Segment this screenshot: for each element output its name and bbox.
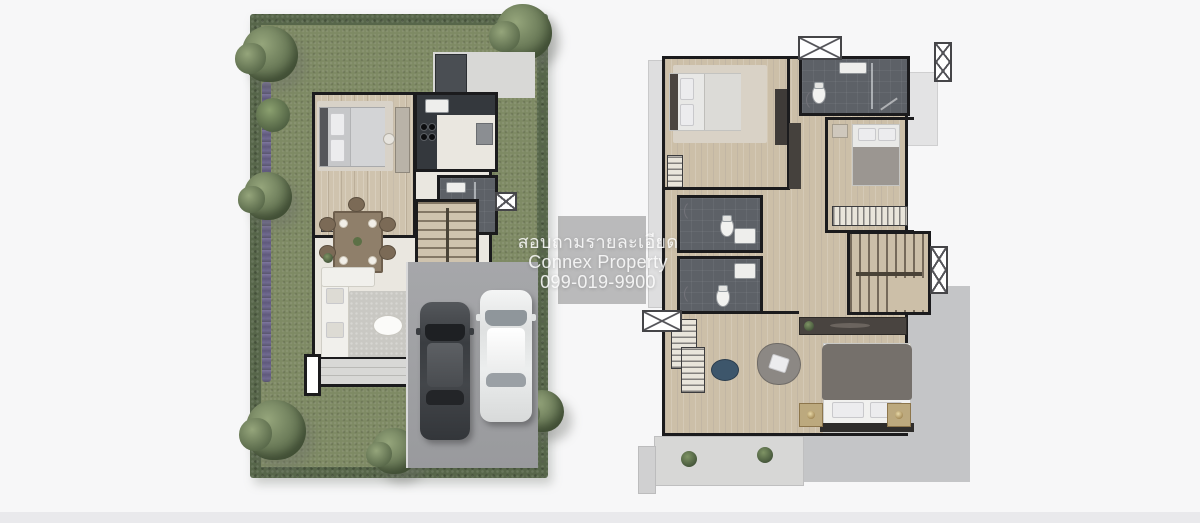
pillow — [878, 128, 896, 141]
place-setting — [339, 256, 348, 265]
hall-wardrobe — [789, 123, 801, 189]
desk-chair — [383, 133, 395, 145]
bathroom-sink — [734, 228, 756, 244]
pillow — [858, 128, 876, 141]
toilet — [720, 218, 734, 237]
stair-landing — [894, 278, 926, 310]
driveway-curb — [406, 262, 408, 468]
stove-burner — [420, 123, 428, 131]
pillow — [768, 354, 790, 374]
kitchen-sink — [425, 99, 449, 113]
bean-bag — [711, 359, 739, 381]
tree — [246, 400, 306, 460]
door-swing — [806, 89, 828, 111]
bottom-edge-strip — [0, 512, 1200, 523]
bed — [319, 107, 385, 167]
wardrobe — [832, 206, 908, 226]
roof-terrace-lower — [802, 432, 968, 482]
desk — [395, 107, 410, 173]
window-icon — [642, 310, 682, 332]
staircase — [847, 231, 931, 315]
master-bathroom — [799, 56, 910, 116]
skylight-icon — [798, 36, 842, 60]
tree — [242, 26, 298, 82]
tree — [244, 172, 292, 220]
console-table — [799, 317, 907, 335]
stove-burner — [428, 123, 436, 131]
balcony-step — [638, 446, 656, 494]
dining-chair — [319, 217, 336, 232]
pillow — [330, 139, 345, 162]
blanket — [853, 147, 899, 185]
bathroom-sink — [839, 62, 867, 74]
console-plant — [804, 321, 814, 331]
potted-plant — [323, 253, 333, 263]
door-swing — [684, 200, 706, 222]
dining-table — [333, 211, 383, 273]
window-icon — [934, 42, 952, 82]
stove-burner — [420, 133, 428, 141]
wall — [665, 187, 789, 190]
dining-chair — [379, 245, 396, 260]
watermark-line-phone: 099-019-9900 — [498, 272, 698, 292]
stove-burner — [428, 133, 436, 141]
pillow — [680, 104, 694, 126]
watermark-line-brand: Connex Property — [498, 252, 698, 272]
place-setting — [339, 219, 348, 228]
toilet — [716, 288, 730, 307]
tv-cabinet — [775, 89, 787, 145]
stair-rail — [856, 272, 922, 276]
bedroom-2 — [825, 117, 914, 233]
sofa-chaise — [321, 267, 375, 287]
dining-chair — [379, 217, 396, 232]
master-wardrobe — [667, 155, 683, 189]
place-setting — [368, 219, 377, 228]
pillow — [680, 78, 694, 100]
headboard — [670, 74, 678, 130]
master-bed — [669, 73, 741, 131]
nightstand — [887, 403, 911, 427]
bed — [852, 124, 900, 186]
blanket — [704, 74, 741, 130]
armchair — [757, 343, 801, 385]
ac-condenser-icon — [495, 192, 517, 211]
table-plant — [353, 237, 362, 246]
bathroom-sink — [446, 182, 466, 193]
nightstand-small — [832, 124, 848, 138]
balcony-plant — [681, 451, 697, 467]
pillow — [330, 113, 345, 136]
kitchen — [414, 92, 498, 172]
kitchen-counter-side — [417, 115, 437, 169]
driveway — [406, 262, 538, 468]
sofa — [321, 281, 349, 367]
bathroom-sink — [734, 263, 756, 279]
nightstand — [799, 403, 823, 427]
wall — [665, 311, 799, 314]
staircase — [415, 199, 479, 271]
balcony — [654, 436, 804, 486]
dining-chair — [348, 197, 365, 212]
sofa-cushion — [326, 288, 344, 304]
window-icon — [930, 246, 948, 294]
coffee-table — [373, 315, 403, 336]
car-white — [480, 290, 532, 422]
entry-step — [304, 354, 321, 396]
shower-head — [880, 97, 898, 110]
headboard — [320, 108, 328, 166]
watermark: สอบถามรายละเอียด Connex Property 099-019… — [498, 232, 698, 292]
sofa-cushion — [326, 322, 344, 338]
place-setting — [368, 256, 377, 265]
shower-glass — [871, 63, 873, 109]
balcony-plant — [757, 447, 773, 463]
shrub — [256, 98, 290, 132]
blanket — [822, 344, 912, 400]
blanket — [350, 108, 385, 166]
car-dark — [420, 302, 470, 440]
stair-rail — [446, 208, 449, 268]
console-tray — [830, 323, 870, 328]
fridge — [476, 123, 493, 145]
floor-plan-render: สอบถามรายละเอียด Connex Property 099-019… — [0, 0, 1200, 523]
wardrobe — [681, 347, 705, 393]
pillow — [832, 402, 864, 418]
house-second-floor — [662, 56, 908, 436]
watermark-line-thai: สอบถามรายละเอียด — [498, 232, 698, 252]
